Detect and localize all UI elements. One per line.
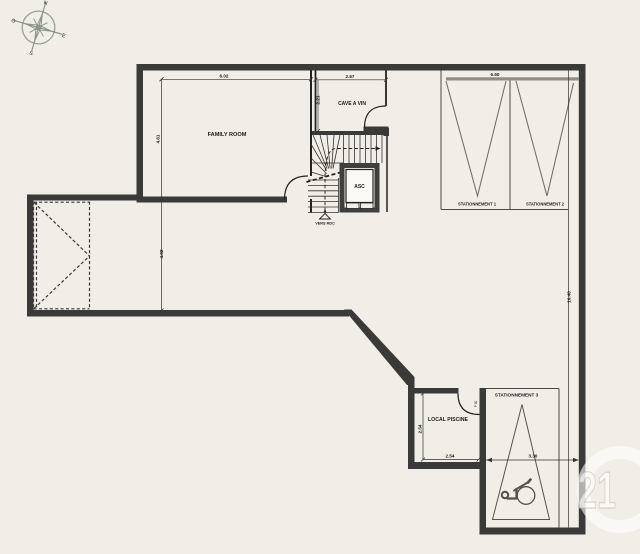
svg-text:P 90: P 90 — [474, 401, 478, 408]
svg-text:FAMILY ROOM: FAMILY ROOM — [208, 132, 247, 138]
svg-text:3.30: 3.30 — [529, 454, 538, 459]
svg-text:16.40: 16.40 — [567, 291, 572, 303]
svg-text:2.21: 2.21 — [316, 95, 321, 104]
svg-text:21: 21 — [578, 462, 616, 520]
svg-text:CAVE A VIN: CAVE A VIN — [338, 101, 366, 107]
svg-text:2.54: 2.54 — [446, 454, 455, 459]
svg-text:ASC: ASC — [354, 184, 365, 190]
svg-text:6.02: 6.02 — [220, 74, 229, 79]
svg-text:2.54: 2.54 — [418, 424, 423, 433]
svg-text:VERS RDC: VERS RDC — [315, 222, 335, 226]
svg-text:4.02: 4.02 — [159, 249, 164, 258]
svg-text:STATIONNEMENT 2: STATIONNEMENT 2 — [526, 202, 565, 207]
svg-text:6.60: 6.60 — [491, 72, 500, 77]
svg-text:4.61: 4.61 — [156, 134, 161, 143]
svg-text:2.67: 2.67 — [346, 74, 355, 79]
svg-text:STATIONNEMENT 3: STATIONNEMENT 3 — [495, 393, 539, 398]
svg-text:LOCAL PISCINE: LOCAL PISCINE — [428, 417, 469, 423]
svg-text:STATIONNEMENT 1: STATIONNEMENT 1 — [458, 202, 497, 207]
